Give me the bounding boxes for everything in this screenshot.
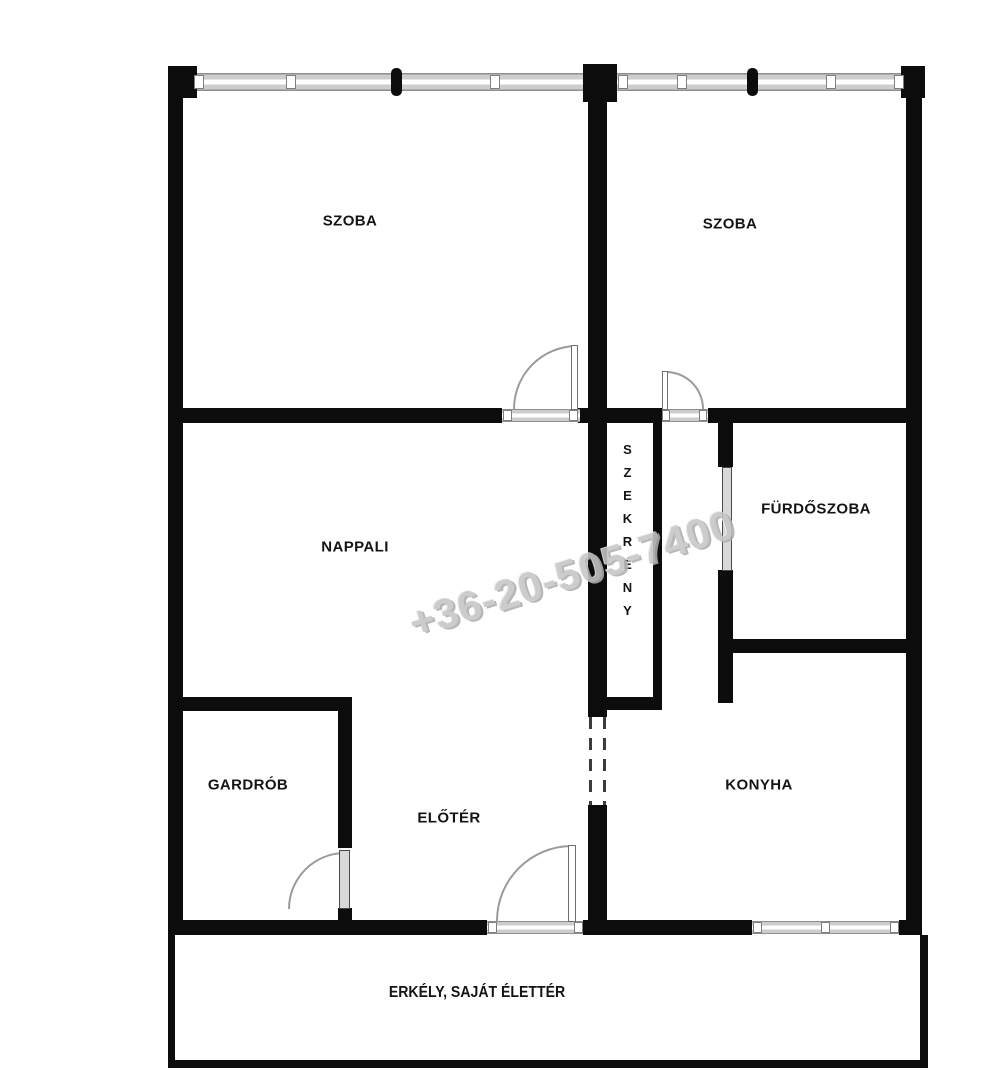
room-label-nappali: NAPPALI xyxy=(321,539,389,556)
threshold-tick xyxy=(574,922,583,933)
room-label-gardrob: GARDRÓB xyxy=(208,777,288,794)
window-tick xyxy=(618,75,628,89)
entrance-threshold xyxy=(487,921,583,934)
threshold-tick xyxy=(503,410,512,421)
wall-szekreny-bottom xyxy=(605,697,662,710)
wall-corner-top-left xyxy=(168,66,197,98)
wall-outer-right xyxy=(906,68,922,935)
wall-central xyxy=(588,88,607,717)
room-label-erkely: ERKÉLY, SAJÁT ÉLETTÉR xyxy=(389,984,565,1002)
wall-bottom-right-post xyxy=(899,920,922,935)
wall-balcony-left xyxy=(168,935,175,1068)
wall-bottom-mid xyxy=(612,920,752,935)
threshold-tick xyxy=(662,410,670,421)
door-arc xyxy=(666,371,704,409)
room-label-furdoszoba: FÜRDŐSZOBA xyxy=(761,501,871,518)
window-mullion-left xyxy=(391,68,402,96)
wall-bottom-left xyxy=(168,920,487,935)
wall-corner-top-right xyxy=(901,66,925,98)
window-tick xyxy=(490,75,500,89)
wall-lower-central xyxy=(588,805,607,935)
window-tick xyxy=(821,922,830,933)
room-label-konyha: KONYHA xyxy=(725,777,792,794)
door-arc xyxy=(288,852,345,909)
room-label-szoba-right: SZOBA xyxy=(703,216,758,233)
door-leaf xyxy=(568,845,576,922)
window-tick xyxy=(894,75,904,89)
window-tick xyxy=(826,75,836,89)
window-tick xyxy=(677,75,687,89)
threshold-tick xyxy=(699,410,707,421)
window-top-left xyxy=(183,73,590,91)
wall-balcony-bottom xyxy=(168,1060,928,1068)
threshold-tick xyxy=(569,410,578,421)
door-leaf xyxy=(662,371,668,410)
wall-bathroom-left-bottom xyxy=(718,570,733,703)
wall-outer-left xyxy=(168,68,183,935)
window-tick xyxy=(194,75,204,89)
window-tick xyxy=(286,75,296,89)
wall-divider-right-b xyxy=(708,408,906,423)
room-label-eloter: ELŐTÉR xyxy=(417,810,480,827)
window-tick xyxy=(890,922,899,933)
wall-bathroom-bottom xyxy=(733,639,906,653)
open-passage-dashed xyxy=(603,717,606,805)
door-leaf xyxy=(339,850,350,909)
watermark-text: +36-20-505-7400 xyxy=(403,500,740,648)
wall-gardrob-right-top xyxy=(338,697,352,848)
door-arc xyxy=(513,345,577,409)
wall-divider-left xyxy=(183,408,502,423)
open-passage-dashed xyxy=(589,717,592,805)
wall-gardrob-top xyxy=(168,697,352,711)
window-tick xyxy=(753,922,762,933)
room-label-szoba-left: SZOBA xyxy=(323,213,378,230)
door-leaf xyxy=(571,345,578,410)
wall-balcony-right xyxy=(920,935,928,1068)
floor-plan: SZOBA SZOBA NAPPALI SZEKRÉNY FÜRDŐSZOBA … xyxy=(0,0,1000,1092)
wall-bathroom-left-top xyxy=(718,408,733,467)
window-mullion-right xyxy=(747,68,758,96)
wall-gardrob-right-bottom xyxy=(338,908,352,935)
door-arc xyxy=(496,845,572,921)
threshold-tick xyxy=(488,922,497,933)
